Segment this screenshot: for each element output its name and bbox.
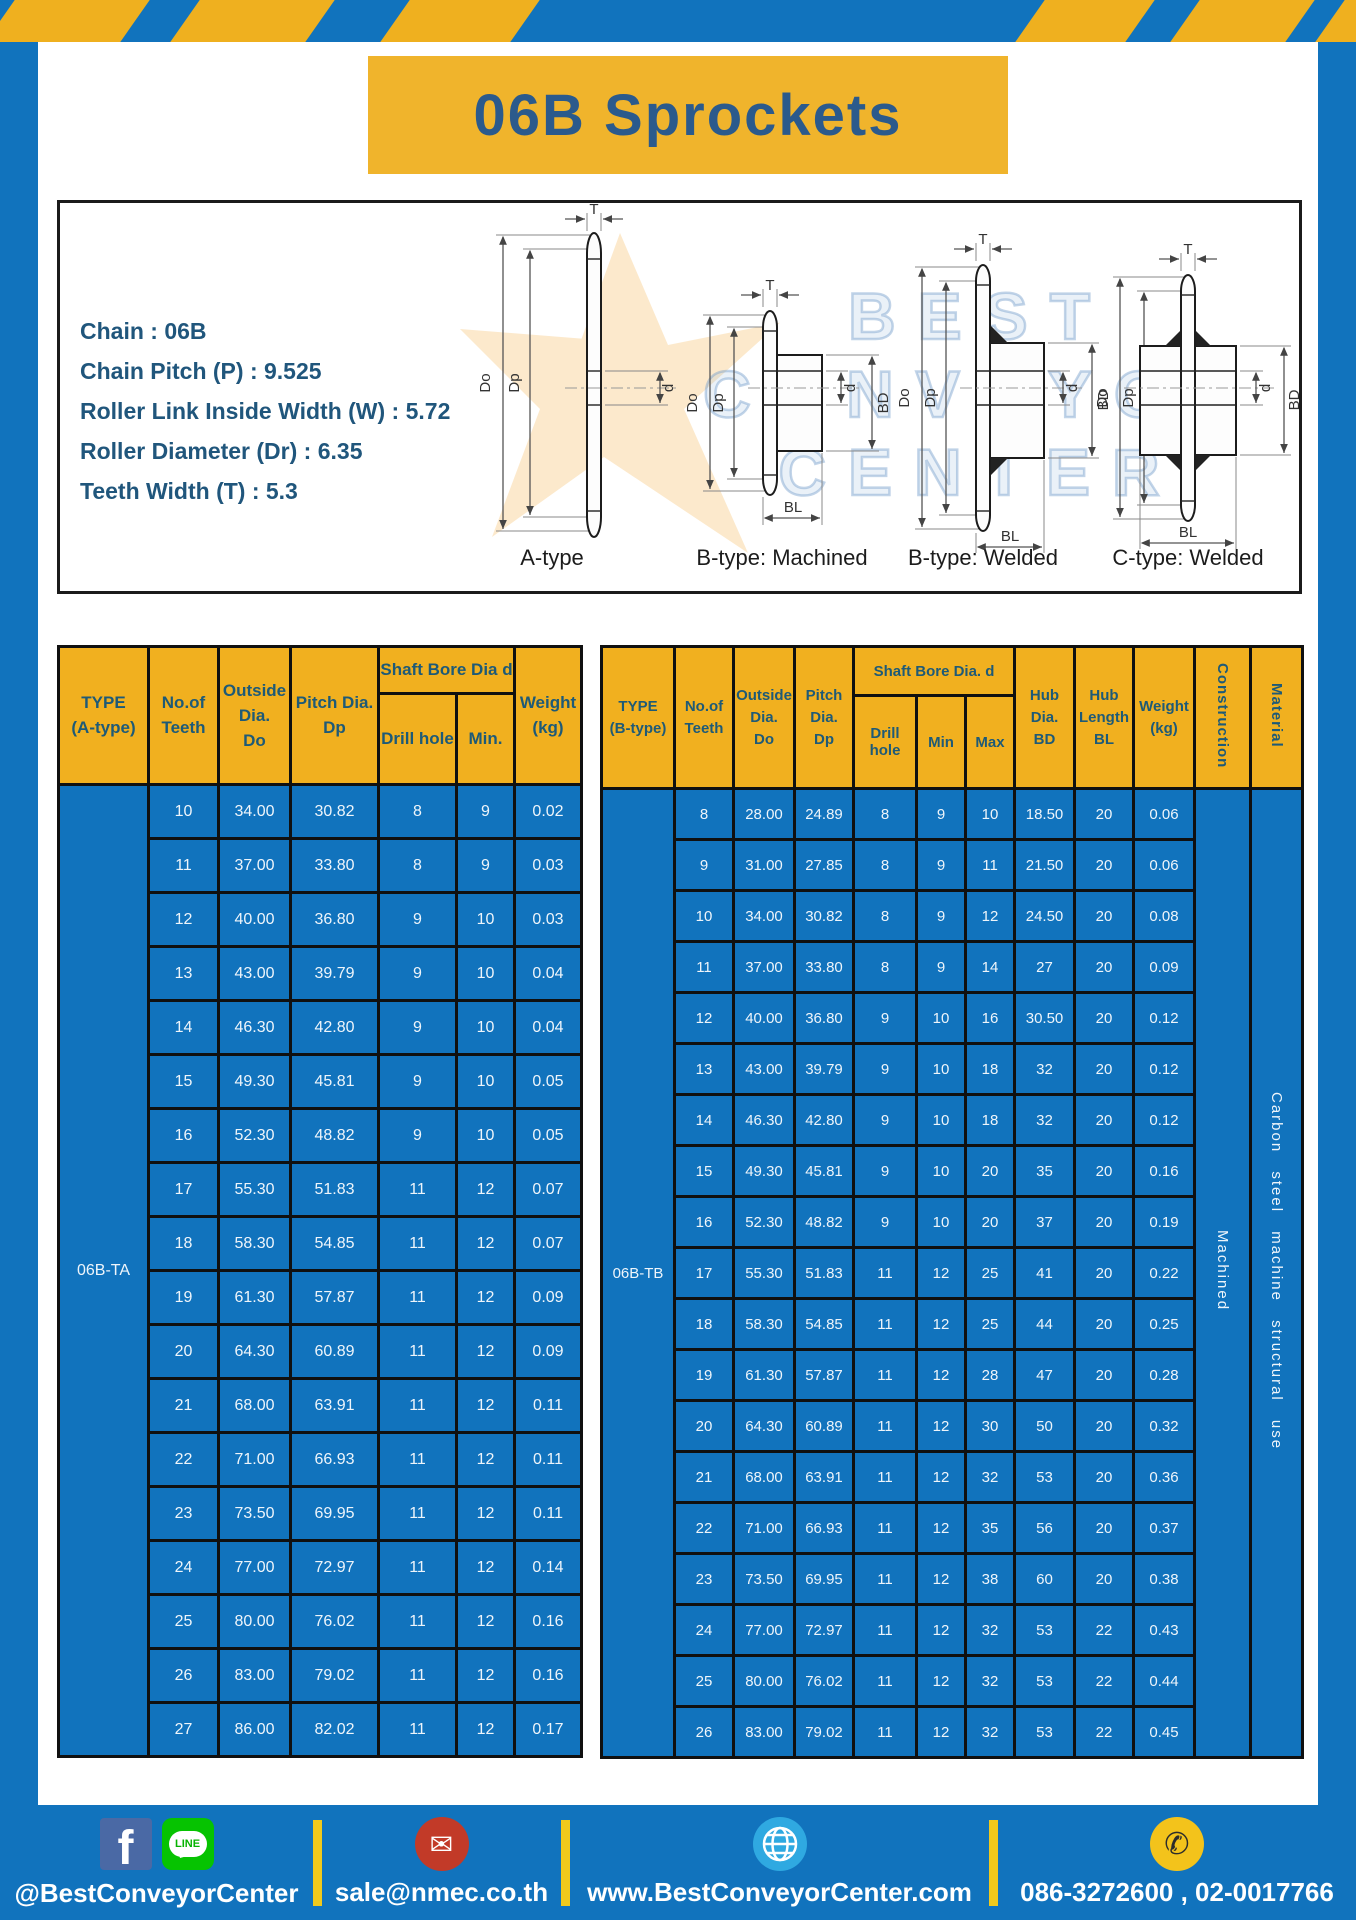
cell: 0.45 xyxy=(1134,1707,1195,1758)
cell: 66.93 xyxy=(291,1433,379,1487)
cell: 12 xyxy=(149,893,219,947)
cell: 9 xyxy=(379,947,457,1001)
cell: 12 xyxy=(457,1703,515,1757)
cell: 25 xyxy=(149,1595,219,1649)
cell: 20 xyxy=(1075,942,1134,993)
footer-email-section: ✉ sale@nmec.co.th xyxy=(322,1817,561,1908)
cell: 0.36 xyxy=(1134,1452,1195,1503)
cell: 0.11 xyxy=(515,1379,582,1433)
cell: 42.80 xyxy=(291,1001,379,1055)
cell: 41 xyxy=(1015,1248,1075,1299)
cell: 24.50 xyxy=(1015,891,1075,942)
cell: 30.82 xyxy=(291,785,379,839)
spec-line: Roller Link Inside Width (W) : 5.72 xyxy=(80,391,450,431)
cell: 9 xyxy=(379,1055,457,1109)
cell: 20 xyxy=(1075,1350,1134,1401)
dim-label: T xyxy=(765,277,774,294)
cell: 8 xyxy=(854,942,917,993)
cell: 40.00 xyxy=(219,893,291,947)
cell: 80.00 xyxy=(219,1595,291,1649)
cell: 11 xyxy=(379,1217,457,1271)
cell: 60.89 xyxy=(795,1401,854,1452)
footer-social-section: f LINE @BestConveyorCenter xyxy=(0,1816,313,1909)
cell: 61.30 xyxy=(219,1271,291,1325)
cell: 63.91 xyxy=(795,1452,854,1503)
cell: 55.30 xyxy=(219,1163,291,1217)
cell: 14 xyxy=(675,1095,734,1146)
cell: 71.00 xyxy=(219,1433,291,1487)
table-b-header: TYPE(B-type) No.ofTeeth OutsideDia.Do Pi… xyxy=(602,647,1303,789)
cell: 12 xyxy=(917,1299,966,1350)
dim-label: d xyxy=(1257,384,1274,392)
cell: 11 xyxy=(854,1350,917,1401)
col-teeth: No.ofTeeth xyxy=(149,647,219,785)
cell: 20 xyxy=(966,1146,1015,1197)
col-max: Max xyxy=(966,696,1015,789)
cell: 77.00 xyxy=(219,1541,291,1595)
cell: 32 xyxy=(966,1707,1015,1758)
cell: 23 xyxy=(675,1554,734,1605)
cell: 16 xyxy=(966,993,1015,1044)
cell: 39.79 xyxy=(291,947,379,1001)
cell: 0.16 xyxy=(1134,1146,1195,1197)
cell: 20 xyxy=(675,1401,734,1452)
cell: 54.85 xyxy=(795,1299,854,1350)
cell: 72.97 xyxy=(291,1541,379,1595)
footer-website-section: www.BestConveyorCenter.com xyxy=(570,1817,989,1908)
cell: 64.30 xyxy=(734,1401,795,1452)
cell: 11 xyxy=(854,1605,917,1656)
cell: 22 xyxy=(1075,1707,1134,1758)
cell: 20 xyxy=(1075,1146,1134,1197)
cell: 0.16 xyxy=(515,1649,582,1703)
table-a-header: TYPE(A-type) No.ofTeeth OutsideDia.Do Pi… xyxy=(59,647,582,785)
cell: 10 xyxy=(917,993,966,1044)
cell: 0.38 xyxy=(1134,1554,1195,1605)
cell: 43.00 xyxy=(219,947,291,1001)
table-b-type: TYPE(B-type) No.ofTeeth OutsideDia.Do Pi… xyxy=(600,645,1304,1759)
drawing-label-a-type: A-type xyxy=(432,545,672,571)
col-hub-length: HubLengthBL xyxy=(1075,647,1134,789)
cell: 55.30 xyxy=(734,1248,795,1299)
cell: 10 xyxy=(149,785,219,839)
cell: 56 xyxy=(1015,1503,1075,1554)
facebook-icon: f xyxy=(100,1818,152,1870)
cell: 0.04 xyxy=(515,1001,582,1055)
cell: 9 xyxy=(854,1095,917,1146)
cell: 80.00 xyxy=(734,1656,795,1707)
cell: 83.00 xyxy=(219,1649,291,1703)
cell: 0.37 xyxy=(1134,1503,1195,1554)
hazard-stripe xyxy=(165,0,341,42)
cell: 0.11 xyxy=(515,1433,582,1487)
cell: 60 xyxy=(1015,1554,1075,1605)
cell: 24.89 xyxy=(795,789,854,840)
cell: 36.80 xyxy=(795,993,854,1044)
cell: 37.00 xyxy=(219,839,291,893)
cell: 20 xyxy=(1075,789,1134,840)
dim-label: Do xyxy=(1094,388,1111,407)
cell: 9 xyxy=(457,839,515,893)
cell: 57.87 xyxy=(291,1271,379,1325)
cell: 86.00 xyxy=(219,1703,291,1757)
dim-label: BL xyxy=(784,499,802,516)
col-drill-hole: Drill hole xyxy=(379,694,457,785)
cell: 28 xyxy=(966,1350,1015,1401)
cell: 38 xyxy=(966,1554,1015,1605)
cell: 16 xyxy=(675,1197,734,1248)
cell: 9 xyxy=(917,891,966,942)
cell: 0.04 xyxy=(515,947,582,1001)
cell: 11 xyxy=(854,1503,917,1554)
cell: 10 xyxy=(457,1109,515,1163)
dim-label: d xyxy=(660,384,677,392)
cell: 11 xyxy=(379,1433,457,1487)
cell: 20 xyxy=(1075,993,1134,1044)
cell: 9 xyxy=(854,1146,917,1197)
cell: 46.30 xyxy=(219,1001,291,1055)
cell: 11 xyxy=(675,942,734,993)
cell: 11 xyxy=(379,1163,457,1217)
dim-label: Do xyxy=(684,393,701,412)
col-outside-dia: OutsideDia.Do xyxy=(734,647,795,789)
cell: 10 xyxy=(457,893,515,947)
cell: 14 xyxy=(149,1001,219,1055)
cell: 53 xyxy=(1015,1656,1075,1707)
cell: 0.08 xyxy=(1134,891,1195,942)
material-value: Carbon steel machine structural use xyxy=(1251,789,1303,1758)
cell: 25 xyxy=(966,1248,1015,1299)
cell: 10 xyxy=(457,1055,515,1109)
cell: 47 xyxy=(1015,1350,1075,1401)
hazard-stripe xyxy=(0,0,155,42)
cell: 0.44 xyxy=(1134,1656,1195,1707)
drawing-b-type-welded: Do Dp d BD xyxy=(896,231,1112,553)
cell: 26 xyxy=(675,1707,734,1758)
cell: 0.03 xyxy=(515,839,582,893)
dim-label: Dp xyxy=(710,393,727,412)
cell: 58.30 xyxy=(734,1299,795,1350)
cell: 9 xyxy=(854,993,917,1044)
cell: 0.25 xyxy=(1134,1299,1195,1350)
cell: 79.02 xyxy=(291,1649,379,1703)
cell: 20 xyxy=(1075,1554,1134,1605)
cell: 68.00 xyxy=(219,1379,291,1433)
cell: 23 xyxy=(149,1487,219,1541)
cell: 11 xyxy=(854,1707,917,1758)
cell: 22 xyxy=(1075,1656,1134,1707)
cell: 18 xyxy=(675,1299,734,1350)
cell: 18 xyxy=(149,1217,219,1271)
cell: 15 xyxy=(675,1146,734,1197)
cell: 0.06 xyxy=(1134,840,1195,891)
cell: 10 xyxy=(917,1044,966,1095)
cell: 8 xyxy=(854,891,917,942)
table-row: 06B-TB828.0024.89891018.50200.06Machined… xyxy=(602,789,1303,840)
cell: 24 xyxy=(149,1541,219,1595)
cell: 8 xyxy=(854,789,917,840)
diagram-box: BEST CONVEYOR CENTER Chain : 06B Chain P… xyxy=(57,200,1302,594)
cell: 27 xyxy=(149,1703,219,1757)
cell: 0.43 xyxy=(1134,1605,1195,1656)
cell: 76.02 xyxy=(795,1656,854,1707)
cell: 69.95 xyxy=(795,1554,854,1605)
cell: 10 xyxy=(917,1146,966,1197)
cell: 32 xyxy=(966,1452,1015,1503)
social-handle: @BestConveyorCenter xyxy=(15,1878,299,1909)
cell: 52.30 xyxy=(734,1197,795,1248)
dim-label: BL xyxy=(1179,524,1197,541)
hazard-stripe xyxy=(1165,0,1321,42)
dim-label: Dp xyxy=(922,388,939,407)
dim-label: BD xyxy=(875,392,892,413)
cell: 49.30 xyxy=(219,1055,291,1109)
col-type: TYPE(B-type) xyxy=(602,647,675,789)
cell: 0.16 xyxy=(515,1595,582,1649)
table-a-body: 06B-TA1034.0030.82890.021137.0033.80890.… xyxy=(59,785,582,1757)
cell: 32 xyxy=(1015,1044,1075,1095)
cell: 21.50 xyxy=(1015,840,1075,891)
dim-label: T xyxy=(1183,241,1192,258)
cell: 9 xyxy=(379,1001,457,1055)
cell: 0.22 xyxy=(1134,1248,1195,1299)
cell: 0.02 xyxy=(515,785,582,839)
cell: 12 xyxy=(917,1656,966,1707)
cell: 11 xyxy=(149,839,219,893)
cell: 30 xyxy=(966,1401,1015,1452)
cell: 73.50 xyxy=(734,1554,795,1605)
hazard-stripe xyxy=(375,0,546,42)
cell: 9 xyxy=(379,1109,457,1163)
table-row: 06B-TA1034.0030.82890.02 xyxy=(59,785,582,839)
page-title: 06B Sprockets xyxy=(474,82,903,149)
title-banner: 06B Sprockets xyxy=(368,56,1008,174)
cell: 0.07 xyxy=(515,1217,582,1271)
cell: 17 xyxy=(675,1248,734,1299)
cell: 33.80 xyxy=(291,839,379,893)
cell: 37.00 xyxy=(734,942,795,993)
col-hub-dia: HubDia.BD xyxy=(1015,647,1075,789)
cell: 31.00 xyxy=(734,840,795,891)
cell: 12 xyxy=(457,1595,515,1649)
cell: 0.07 xyxy=(515,1163,582,1217)
cell: 0.32 xyxy=(1134,1401,1195,1452)
dim-label: Dp xyxy=(1120,388,1137,407)
cell: 12 xyxy=(457,1163,515,1217)
cell: 12 xyxy=(917,1248,966,1299)
dim-label: Dp xyxy=(506,373,523,392)
cell: 22 xyxy=(149,1433,219,1487)
cell: 63.91 xyxy=(291,1379,379,1433)
cell: 14 xyxy=(966,942,1015,993)
cell: 12 xyxy=(457,1487,515,1541)
drawing-label-c-welded: C-type: Welded xyxy=(1068,545,1302,571)
table-b-body: 06B-TB828.0024.89891018.50200.06Machined… xyxy=(602,789,1303,1758)
cell: 20 xyxy=(1075,1248,1134,1299)
table-a-type: TYPE(A-type) No.ofTeeth OutsideDia.Do Pi… xyxy=(57,645,583,1758)
cell: 66.93 xyxy=(795,1503,854,1554)
cell: 20 xyxy=(1075,840,1134,891)
cell: 52.30 xyxy=(219,1109,291,1163)
cell: 20 xyxy=(1075,1197,1134,1248)
cell: 11 xyxy=(379,1325,457,1379)
cell: 12 xyxy=(917,1503,966,1554)
cell: 51.83 xyxy=(795,1248,854,1299)
cell: 11 xyxy=(854,1299,917,1350)
cell: 0.06 xyxy=(1134,789,1195,840)
cell: 25 xyxy=(675,1656,734,1707)
cell: 11 xyxy=(966,840,1015,891)
cell: 34.00 xyxy=(734,891,795,942)
cell: 11 xyxy=(379,1271,457,1325)
col-outside-dia: OutsideDia.Do xyxy=(219,647,291,785)
cell: 12 xyxy=(457,1271,515,1325)
cell: 11 xyxy=(854,1656,917,1707)
cell: 12 xyxy=(917,1554,966,1605)
cell: 27.85 xyxy=(795,840,854,891)
cell: 15 xyxy=(149,1055,219,1109)
cell: 68.00 xyxy=(734,1452,795,1503)
phone-icon: ✆ xyxy=(1150,1817,1204,1871)
cell: 0.05 xyxy=(515,1109,582,1163)
cell: 53 xyxy=(1015,1452,1075,1503)
phone-numbers: 086-3272600 , 02-0017766 xyxy=(1020,1877,1334,1908)
cell: 18 xyxy=(966,1044,1015,1095)
cell: 0.17 xyxy=(515,1703,582,1757)
cell: 22 xyxy=(1075,1605,1134,1656)
cell: 10 xyxy=(457,947,515,1001)
cell: 54.85 xyxy=(291,1217,379,1271)
dim-label: T xyxy=(978,231,987,248)
cell: 8 xyxy=(675,789,734,840)
cell: 8 xyxy=(854,840,917,891)
cell: 8 xyxy=(379,785,457,839)
globe-icon xyxy=(753,1817,807,1871)
col-weight: Weight(kg) xyxy=(1134,647,1195,789)
cell: 20 xyxy=(1075,1503,1134,1554)
hazard-stripe-band xyxy=(0,0,1356,42)
cell: 9 xyxy=(917,840,966,891)
chain-specs: Chain : 06B Chain Pitch (P) : 9.525 Roll… xyxy=(80,311,450,511)
cell: 13 xyxy=(149,947,219,1001)
cell: 16 xyxy=(149,1109,219,1163)
drawing-c-type-welded: Do Dp d xyxy=(1094,241,1302,549)
col-type: TYPE(A-type) xyxy=(59,647,149,785)
col-weight: Weight(kg) xyxy=(515,647,582,785)
cell: 64.30 xyxy=(219,1325,291,1379)
cell: 11 xyxy=(854,1401,917,1452)
cell: 12 xyxy=(457,1541,515,1595)
cell: 50 xyxy=(1015,1401,1075,1452)
cell: 0.12 xyxy=(1134,1095,1195,1146)
cell: 26 xyxy=(149,1649,219,1703)
cell: 12 xyxy=(917,1605,966,1656)
cell: 11 xyxy=(854,1554,917,1605)
cell: 0.09 xyxy=(515,1325,582,1379)
email-icon: ✉ xyxy=(415,1817,469,1871)
cell: 0.03 xyxy=(515,893,582,947)
cell: 0.19 xyxy=(1134,1197,1195,1248)
cell: 0.12 xyxy=(1134,1044,1195,1095)
cell: 39.79 xyxy=(795,1044,854,1095)
cell: 28.00 xyxy=(734,789,795,840)
cell: 34.00 xyxy=(219,785,291,839)
cell: 22 xyxy=(675,1503,734,1554)
cell: 21 xyxy=(675,1452,734,1503)
cell: 11 xyxy=(379,1649,457,1703)
email-address: sale@nmec.co.th xyxy=(335,1877,548,1908)
cell: 17 xyxy=(149,1163,219,1217)
col-shaft-bore: Shaft Bore Dia. d xyxy=(854,647,1015,696)
cell: 25 xyxy=(966,1299,1015,1350)
cell: 20 xyxy=(149,1325,219,1379)
cell: 9 xyxy=(854,1044,917,1095)
construction-value: Machined xyxy=(1195,789,1251,1758)
cell: 71.00 xyxy=(734,1503,795,1554)
cell: 10 xyxy=(966,789,1015,840)
cell: 12 xyxy=(457,1379,515,1433)
cell: 49.30 xyxy=(734,1146,795,1197)
cell: 12 xyxy=(675,993,734,1044)
contact-footer: f LINE @BestConveyorCenter ✉ sale@nmec.c… xyxy=(0,1805,1356,1920)
cell: 42.80 xyxy=(795,1095,854,1146)
cell: 18.50 xyxy=(1015,789,1075,840)
cell: 77.00 xyxy=(734,1605,795,1656)
dim-label: d xyxy=(1064,384,1081,392)
cell: 11 xyxy=(379,1379,457,1433)
cell: 32 xyxy=(966,1656,1015,1707)
cell: 53 xyxy=(1015,1605,1075,1656)
col-drill-hole: Drill hole xyxy=(854,696,917,789)
cell: 0.05 xyxy=(515,1055,582,1109)
cell: 11 xyxy=(854,1452,917,1503)
col-construction: Construction xyxy=(1195,647,1251,789)
cell: 30.82 xyxy=(795,891,854,942)
spec-line: Chain : 06B xyxy=(80,311,450,351)
cell: 20 xyxy=(1075,1299,1134,1350)
cell: 73.50 xyxy=(219,1487,291,1541)
cell: 37 xyxy=(1015,1197,1075,1248)
cell: 82.02 xyxy=(291,1703,379,1757)
spec-line: Chain Pitch (P) : 9.525 xyxy=(80,351,450,391)
cell: 61.30 xyxy=(734,1350,795,1401)
cell: 12 xyxy=(917,1707,966,1758)
cell: 20 xyxy=(1075,1401,1134,1452)
cell: 12 xyxy=(917,1452,966,1503)
cell: 0.28 xyxy=(1134,1350,1195,1401)
cell: 10 xyxy=(917,1197,966,1248)
cell: 51.83 xyxy=(291,1163,379,1217)
cell: 45.81 xyxy=(795,1146,854,1197)
cell: 58.30 xyxy=(219,1217,291,1271)
cell: 0.14 xyxy=(515,1541,582,1595)
cell: 9 xyxy=(379,893,457,947)
type-label: 06B-TB xyxy=(602,789,675,1758)
dim-label: Do xyxy=(477,373,494,392)
page-content: 06B Sprockets BEST CONVEYOR CENTER Chain… xyxy=(38,42,1318,1808)
cell: 0.09 xyxy=(515,1271,582,1325)
cell: 33.80 xyxy=(795,942,854,993)
cell: 20 xyxy=(1075,1044,1134,1095)
drawing-a-type: Do Dp d T xyxy=(477,203,678,537)
website-url: www.BestConveyorCenter.com xyxy=(587,1877,972,1908)
cell: 43.00 xyxy=(734,1044,795,1095)
cell: 76.02 xyxy=(291,1595,379,1649)
cell: 9 xyxy=(675,840,734,891)
dim-label: T xyxy=(589,203,598,218)
cell: 48.82 xyxy=(291,1109,379,1163)
cell: 12 xyxy=(457,1649,515,1703)
